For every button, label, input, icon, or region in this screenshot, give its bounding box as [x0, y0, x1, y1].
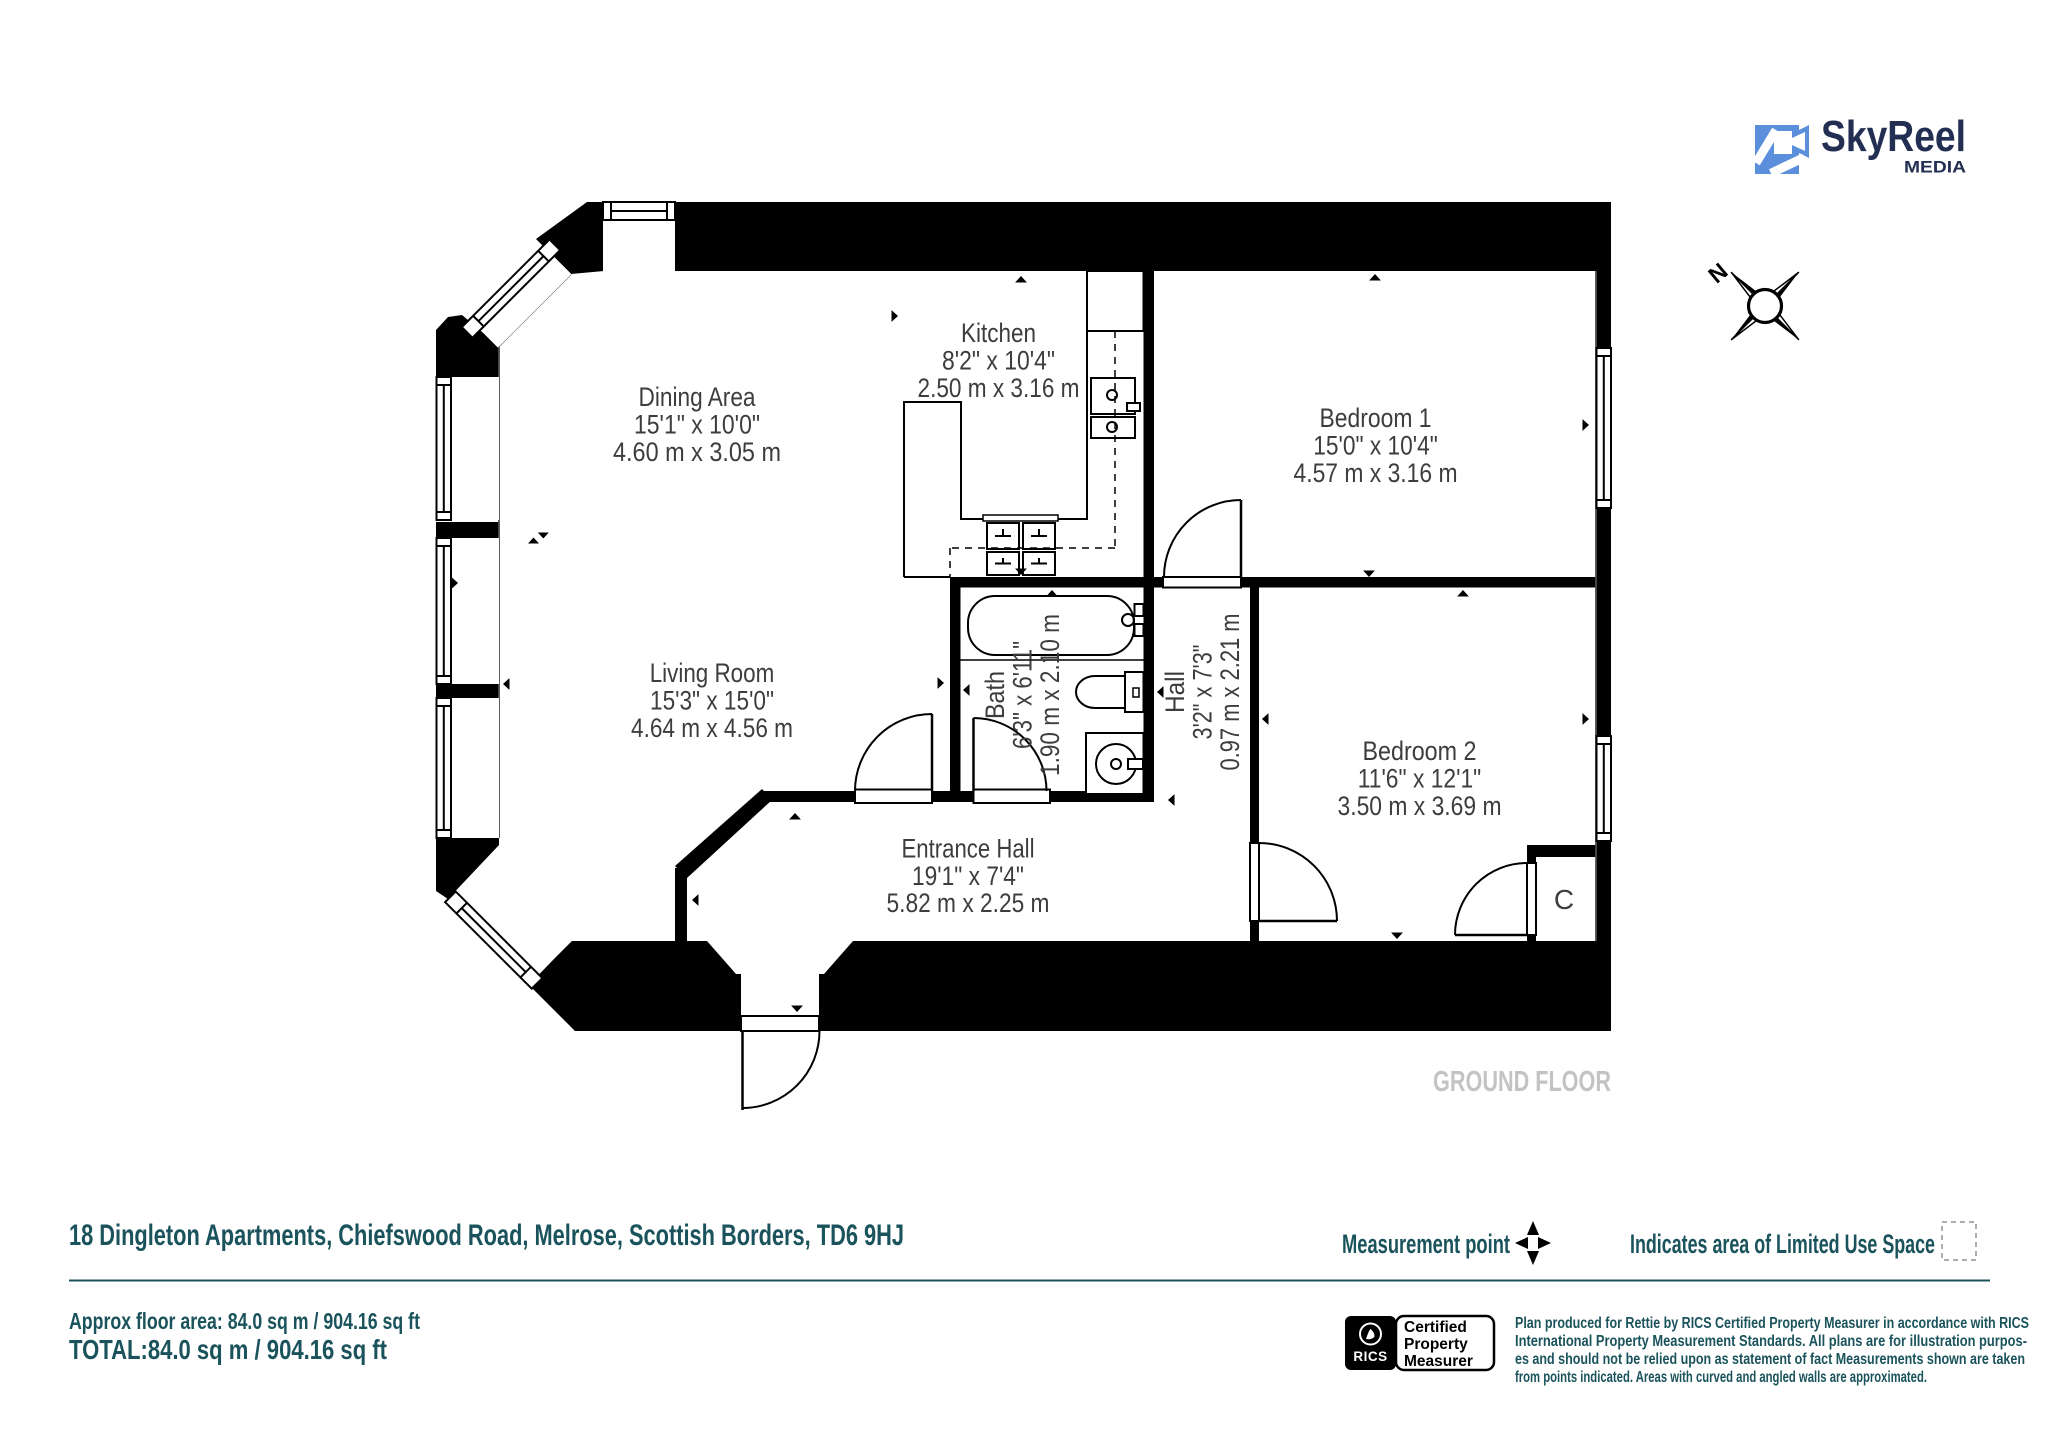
- svg-text:4.57 m x 3.16 m: 4.57 m x 3.16 m: [1294, 458, 1458, 488]
- svg-text:4.64 m x 4.56 m: 4.64 m x 4.56 m: [631, 713, 793, 743]
- svg-text:4.60 m x 3.05 m: 4.60 m x 3.05 m: [613, 437, 781, 467]
- svg-text:from points indicated. Areas w: from points indicated. Areas with curved…: [1515, 1369, 1927, 1386]
- svg-text:Entrance Hall: Entrance Hall: [902, 833, 1035, 863]
- svg-text:Kitchen: Kitchen: [961, 318, 1036, 348]
- svg-text:11'6" x 12'1": 11'6" x 12'1": [1358, 763, 1482, 793]
- svg-text:2.50 m x 3.16 m: 2.50 m x 3.16 m: [918, 373, 1080, 403]
- svg-text:RICS: RICS: [1353, 1349, 1387, 1364]
- svg-text:Bath: Bath: [980, 671, 1010, 719]
- svg-text:Dining Area: Dining Area: [639, 382, 757, 412]
- svg-text:International Property Measur: International Property Measurement Stand…: [1515, 1333, 2027, 1350]
- svg-text:Bedroom 1: Bedroom 1: [1320, 403, 1432, 433]
- svg-text:C: C: [1554, 884, 1574, 915]
- svg-text:8'2" x 10'4": 8'2" x 10'4": [942, 345, 1055, 375]
- svg-text:3'2" x 7'3": 3'2" x 7'3": [1187, 645, 1217, 740]
- svg-text:6'3" x 6'11": 6'3" x 6'11": [1007, 641, 1037, 749]
- svg-text:15'3" x 15'0": 15'3" x 15'0": [650, 685, 774, 715]
- svg-text:Approx floor area: 84.0 sq m /: Approx floor area: 84.0 sq m / 904.16 sq…: [69, 1308, 420, 1334]
- svg-text:es and should not be relied up: es and should not be relied upon as stat…: [1515, 1351, 2025, 1368]
- svg-text:TOTAL:84.0 sq m / 904.16 sq ft: TOTAL:84.0 sq m / 904.16 sq ft: [69, 1334, 387, 1365]
- svg-text:5.82 m x 2.25 m: 5.82 m x 2.25 m: [887, 888, 1050, 918]
- svg-text:SkyReel: SkyReel: [1821, 112, 1966, 161]
- svg-text:19'1" x 7'4": 19'1" x 7'4": [912, 861, 1024, 891]
- svg-text:1.90 m x 2.10 m: 1.90 m x 2.10 m: [1035, 614, 1065, 776]
- svg-text:15'0" x 10'4": 15'0" x 10'4": [1313, 430, 1438, 460]
- svg-text:Living Room: Living Room: [650, 658, 775, 688]
- svg-text:Measurer: Measurer: [1404, 1353, 1473, 1370]
- svg-text:0.97 m x 2.21 m: 0.97 m x 2.21 m: [1215, 614, 1245, 771]
- svg-text:GROUND FLOOR: GROUND FLOOR: [1433, 1066, 1611, 1098]
- svg-text:Certified: Certified: [1404, 1319, 1467, 1336]
- svg-text:15'1" x 10'0": 15'1" x 10'0": [634, 409, 760, 439]
- svg-text:3.50 m x 3.69 m: 3.50 m x 3.69 m: [1338, 791, 1502, 821]
- svg-text:Property: Property: [1404, 1336, 1468, 1353]
- svg-text:Hall: Hall: [1160, 671, 1190, 713]
- svg-text:18 Dingleton Apartments, Chief: 18 Dingleton Apartments, Chiefswood Road…: [69, 1219, 904, 1252]
- svg-text:Indicates area of Limited Use: Indicates area of Limited Use Space: [1630, 1229, 1935, 1259]
- svg-text:MEDIA: MEDIA: [1904, 158, 1966, 176]
- svg-text:Plan produced for Rettie by RI: Plan produced for Rettie by RICS Certifi…: [1515, 1315, 2029, 1332]
- svg-text:Measurement point: Measurement point: [1342, 1229, 1510, 1259]
- svg-text:Bedroom 2: Bedroom 2: [1363, 736, 1477, 766]
